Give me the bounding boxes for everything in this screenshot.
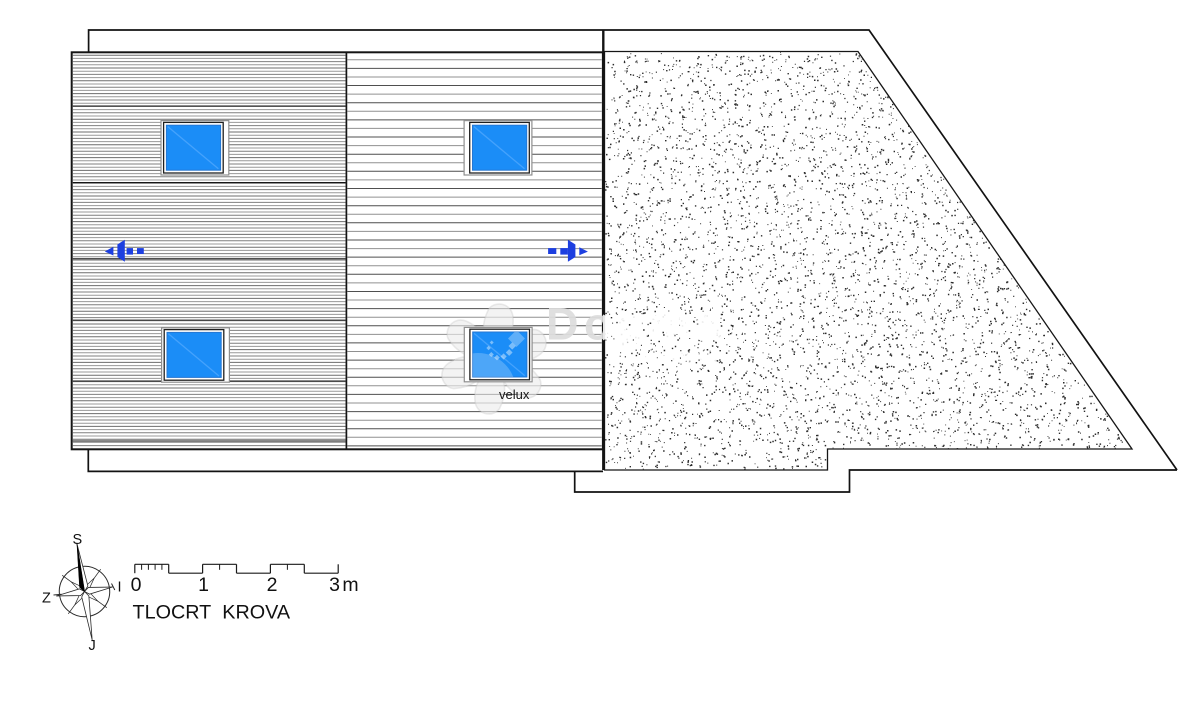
svg-text:nekretnine: nekretnine <box>640 349 718 364</box>
svg-text:J: J <box>89 638 96 654</box>
svg-text:2: 2 <box>267 574 278 596</box>
svg-text:S: S <box>73 532 83 548</box>
svg-text:TLOCRT KROVA: TLOCRT KROVA <box>133 602 291 624</box>
svg-text:I: I <box>118 580 122 596</box>
svg-text:3: 3 <box>329 574 340 596</box>
svg-text:m: m <box>342 574 358 596</box>
svg-text:0: 0 <box>131 574 142 596</box>
svg-text:1: 1 <box>198 574 209 596</box>
svg-text:Z: Z <box>42 591 51 607</box>
svg-text:velux: velux <box>499 387 530 402</box>
